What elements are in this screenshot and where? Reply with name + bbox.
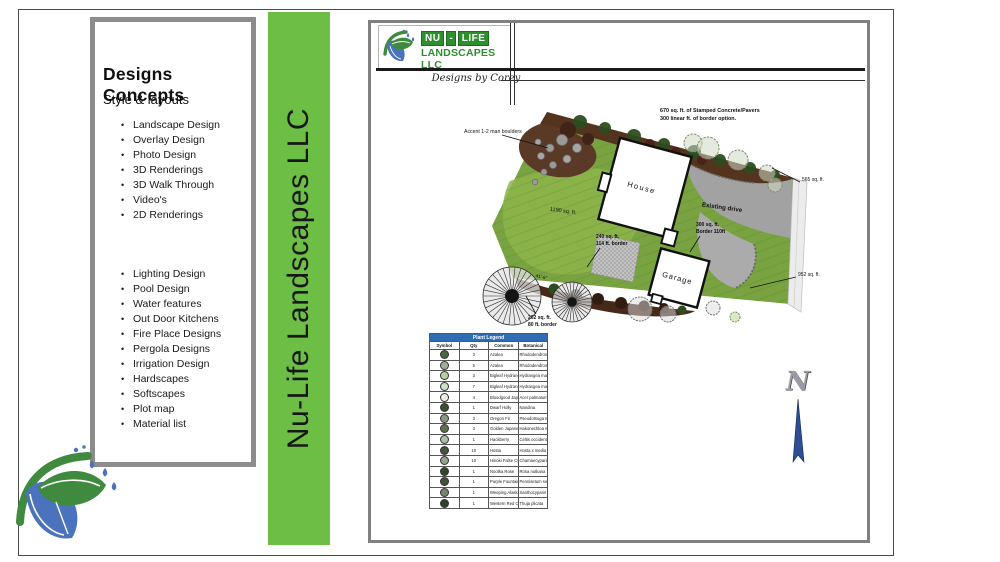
plant-symbol <box>440 446 449 455</box>
plant-symbol <box>440 456 449 465</box>
leaf-logo-icon <box>381 28 419 66</box>
tree-symbol <box>552 282 592 322</box>
label-952: 952 sq. ft. <box>798 272 820 278</box>
label-240a: 240 sq. ft. <box>596 234 620 240</box>
label-300a: 300 sq. ft. <box>696 222 720 228</box>
plant-legend-table: Plant Legend Symbol Qty Common Botanical… <box>429 333 548 509</box>
col-qty: Qty <box>459 342 489 350</box>
legend-row: 3Oregon FirPseudotsuga menziesii <box>430 413 548 424</box>
legend-row: 1Nootka RoseRosa nutkana <box>430 466 548 477</box>
plant-symbol <box>440 488 449 497</box>
list-item: •Landscape Design <box>121 118 251 133</box>
label-565: 565 sq. ft. <box>802 177 824 183</box>
plant-symbol <box>440 393 449 402</box>
plant-symbol <box>440 477 449 486</box>
col-symbol: Symbol <box>430 342 460 350</box>
legend-row: 1Western Red CedarThuja plicata <box>430 498 548 509</box>
list-item: •Material list <box>121 417 251 432</box>
list-item: •Plot map <box>121 402 251 417</box>
panel-subtitle: Style & layouts <box>103 92 189 107</box>
legend-row: 10HostaHosta x media 'Halcyon' <box>430 445 548 456</box>
list-item: •Water features <box>121 297 251 312</box>
plant-symbol <box>440 424 449 433</box>
legend-row: 3Golden Japanese Forest GrassHakonechloa… <box>430 424 548 435</box>
titleblock-rule-thin <box>501 80 865 81</box>
legend-row: 7Bigleaf HydrangeaHydrangea macrophylla … <box>430 381 548 392</box>
label-202b: 80 ft. border <box>528 322 557 328</box>
titleblock-rule-thick <box>376 68 865 71</box>
legend-title: Plant Legend <box>430 334 548 342</box>
list-item: •Softscapes <box>121 387 251 402</box>
compass: N <box>775 368 821 476</box>
plant-symbol <box>440 350 449 359</box>
legend-row: 1Dwarf HollyNandina <box>430 402 548 413</box>
list-item: •Video's <box>121 193 251 208</box>
list-item: •Fire Place Designs <box>121 327 251 342</box>
boulders-label: Accent 1-2 man boulders <box>464 129 522 135</box>
note-border: 300 linear ft. of border option. <box>660 116 737 122</box>
legend-header-row: Symbol Qty Common Botanical <box>430 342 548 350</box>
watermark-leaf-logo <box>8 442 123 557</box>
logo-word-life: LIFE <box>458 31 490 46</box>
legend-tbody: 3AzaleaRhododendron5AzaleaRhododendron3B… <box>430 350 548 509</box>
plant-symbol <box>440 382 449 391</box>
list-item: •Lighting Design <box>121 267 251 282</box>
label-240b: 114 ft. border <box>596 241 627 247</box>
list-item: •3D Renderings <box>121 163 251 178</box>
list-item: •Overlay Design <box>121 133 251 148</box>
col-botanical: Botanical <box>518 342 548 350</box>
slide: Designs Concepts Style & layouts •Landsc… <box>0 0 1000 562</box>
company-logo: NU - LIFE LANDSCAPES LLC <box>378 25 511 69</box>
legend-row: 10Hinoki False CypressChamaecyparis obtu… <box>430 455 548 466</box>
list-item: •2D Renderings <box>121 208 251 223</box>
legend-row: 3AzaleaRhododendron <box>430 350 548 361</box>
legend-row: 1Weeping Alaska CypressXanthocyparis noo… <box>430 487 548 498</box>
plant-symbol <box>440 403 449 412</box>
company-banner-text: Nu-Life Landscapes LLC <box>282 108 316 449</box>
design-list-2: •Lighting Design•Pool Design•Water featu… <box>121 267 251 432</box>
note-stamped: 670 sq. ft. of Stamped Concrete/Pavers <box>660 108 760 114</box>
col-common: Common <box>489 342 519 350</box>
list-item: •Pool Design <box>121 282 251 297</box>
legend-row: 3Bigleaf HydrangeaHydrangea macrophylla … <box>430 371 548 382</box>
list-item: •Irrigation Design <box>121 357 251 372</box>
list-item: •Out Door Kitchens <box>121 312 251 327</box>
legend-row: 1Purple Fountain GrassPennisetum setaceu… <box>430 477 548 488</box>
company-banner: Nu-Life Landscapes LLC <box>268 12 330 545</box>
list-item: •3D Walk Through <box>121 178 251 193</box>
list-item: •Pergola Designs <box>121 342 251 357</box>
plant-symbol <box>440 361 449 370</box>
design-list-1: •Landscape Design•Overlay Design•Photo D… <box>121 118 251 223</box>
logo-wordmark: NU - LIFE LANDSCAPES LLC <box>421 31 507 71</box>
label-202a: 202 sq. ft. <box>528 315 552 321</box>
list-item: •Photo Design <box>121 148 251 163</box>
plant-symbol <box>440 467 449 476</box>
plant-symbol <box>440 371 449 380</box>
logo-dash: - <box>446 31 455 46</box>
north-arrow-icon <box>778 396 818 468</box>
label-300b: Border 110ft <box>696 229 726 235</box>
logo-word-nu: NU <box>421 31 444 46</box>
plant-symbol <box>440 499 449 508</box>
legend-row: 5AzaleaRhododendron <box>430 360 548 371</box>
plant-symbol <box>440 414 449 423</box>
design-concepts-panel: Designs Concepts Style & layouts •Landsc… <box>90 17 256 467</box>
compass-north-letter: N <box>775 368 821 396</box>
site-plan: House Garage 670 sq. ft. of Stamped Conc… <box>450 86 880 356</box>
legend-row: 1HackberryCeltis occidentalis <box>430 434 548 445</box>
legend-row: 4Bloodgood Japanese MapleAcer palmatum '… <box>430 392 548 403</box>
list-item: •Hardscapes <box>121 372 251 387</box>
designer-tagline: Designs by Corey <box>426 73 526 84</box>
plant-symbol <box>440 435 449 444</box>
